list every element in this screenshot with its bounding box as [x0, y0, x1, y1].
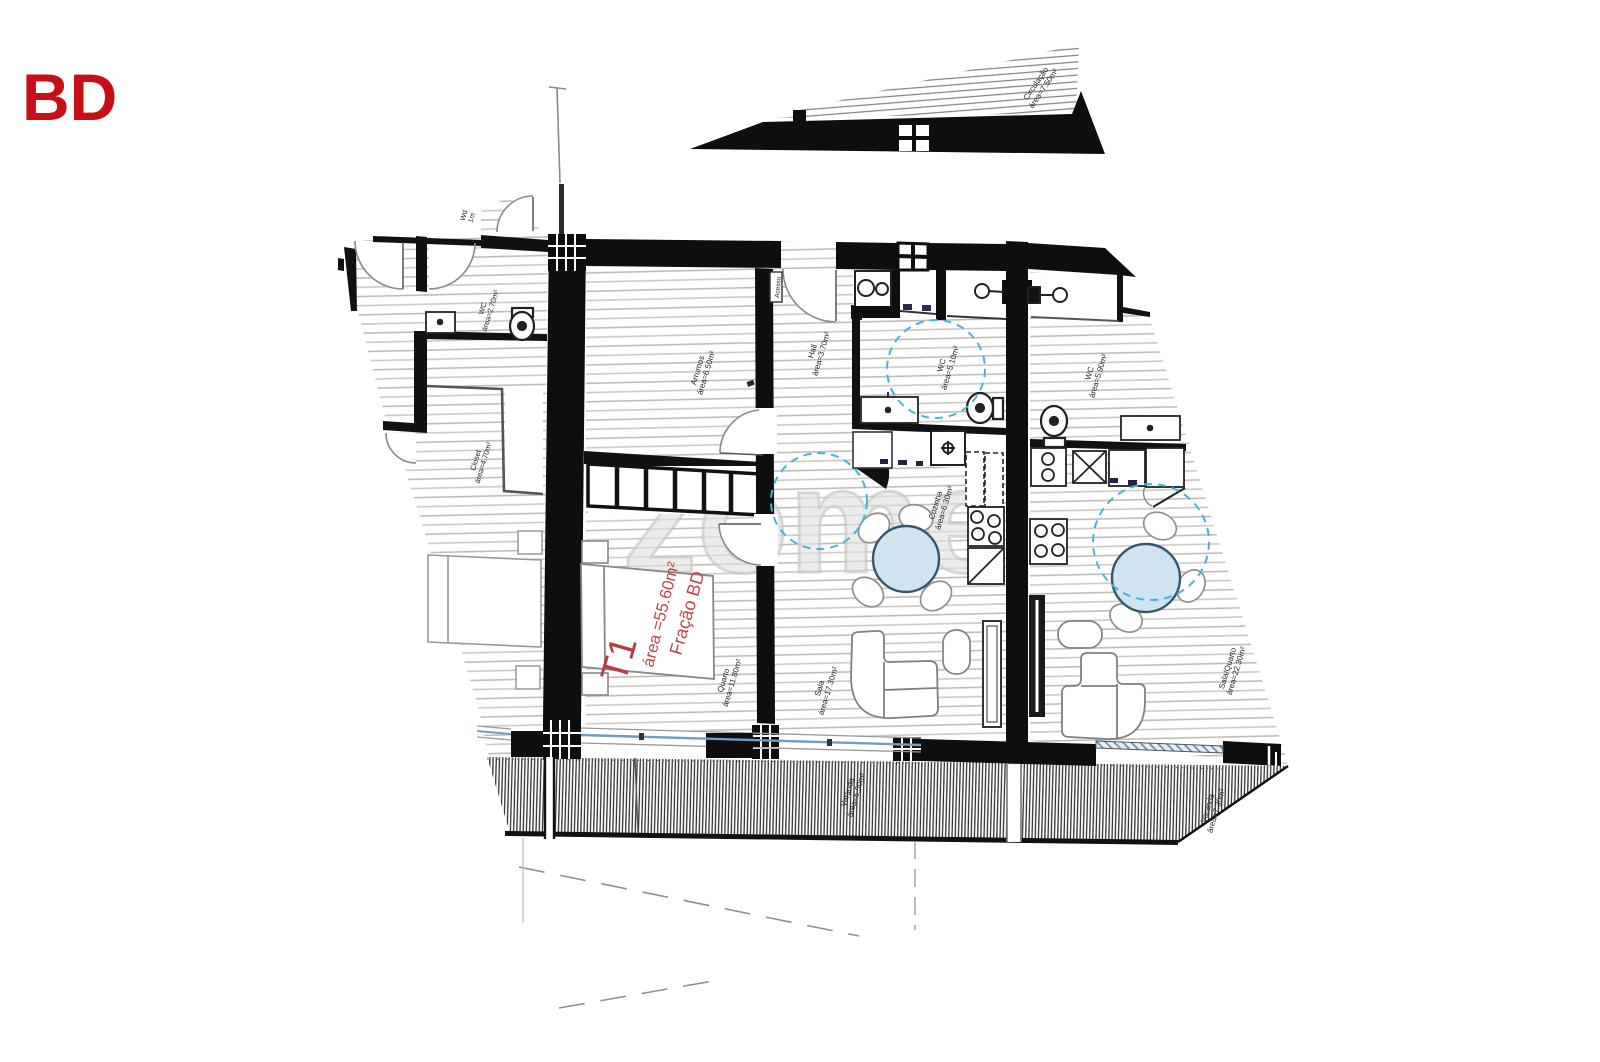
svg-text:BD: BD — [22, 60, 117, 134]
